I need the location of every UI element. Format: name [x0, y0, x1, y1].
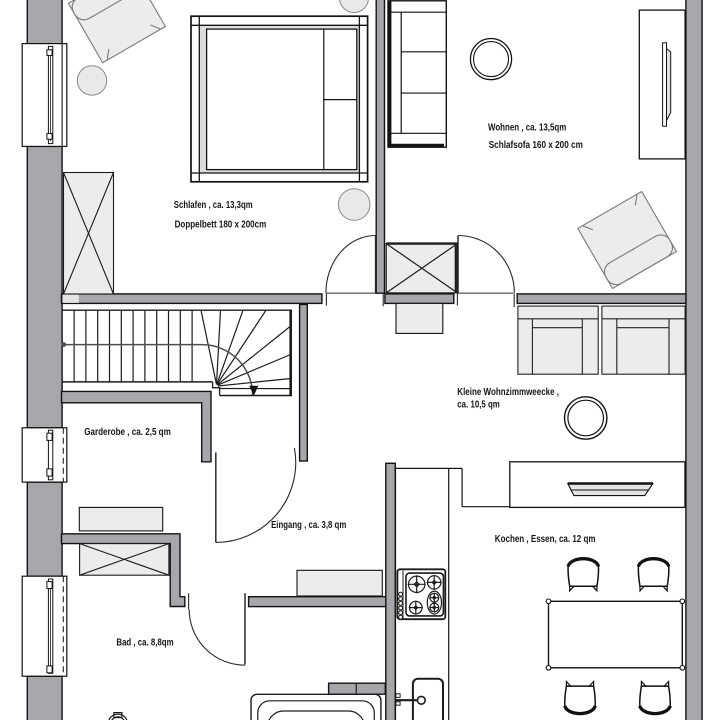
svg-text:Schlafsofa 160 x 200 cm: Schlafsofa 160 x 200 cm [489, 140, 583, 151]
svg-text:ca. 10,5 qm: ca. 10,5 qm [457, 400, 500, 411]
svg-text:Kleine Wohnzimmweecke ,: Kleine Wohnzimmweecke , [457, 387, 559, 398]
svg-text:Wohnen , ca. 13,5qm: Wohnen , ca. 13,5qm [488, 122, 567, 133]
svg-text:Doppelbett 180 x 200cm: Doppelbett 180 x 200cm [175, 219, 267, 230]
svg-text:Bad , ca. 8,8qm: Bad , ca. 8,8qm [116, 638, 173, 649]
svg-text:Kochen , Essen, ca. 12 qm: Kochen , Essen, ca. 12 qm [495, 534, 596, 545]
svg-text:Garderobe , ca. 2,5 qm: Garderobe , ca. 2,5 qm [84, 427, 171, 438]
svg-text:Eingang , ca. 3,8 qm: Eingang , ca. 3,8 qm [271, 520, 346, 531]
svg-text:Schlafen , ca. 13,3qm: Schlafen , ca. 13,3qm [174, 200, 253, 211]
